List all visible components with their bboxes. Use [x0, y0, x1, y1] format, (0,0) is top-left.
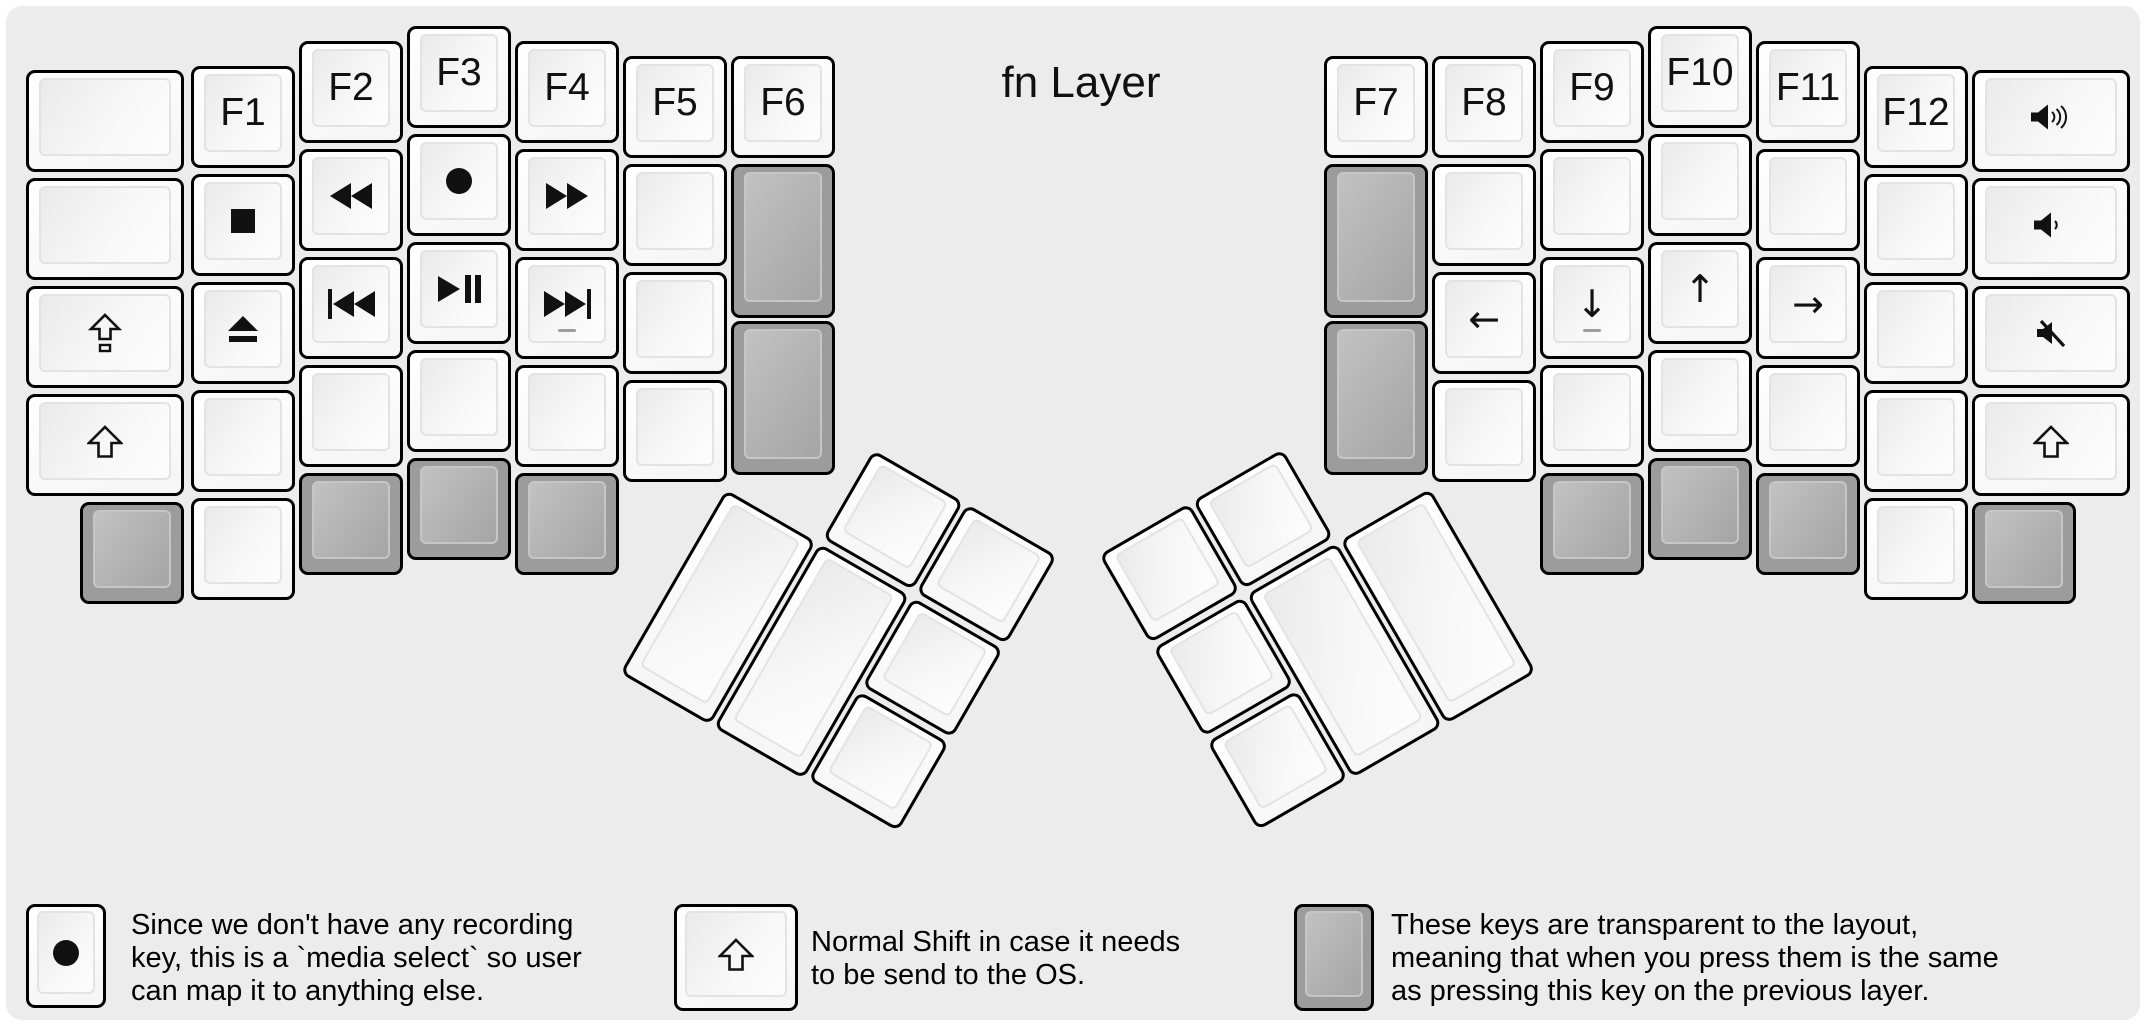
- key-label: F2: [328, 66, 374, 110]
- key-caps-lock[interactable]: [26, 286, 184, 388]
- keycap-top: [636, 280, 714, 358]
- key-label: F1: [220, 91, 266, 135]
- key-label: F6: [760, 81, 806, 125]
- key-play-pause[interactable]: [407, 242, 511, 344]
- fast-forward-icon: [546, 183, 588, 209]
- key-arrow-down[interactable]: ↓: [1540, 257, 1644, 359]
- key-label: F11: [1776, 66, 1840, 110]
- arrow-up-icon: ↑: [1684, 267, 1716, 311]
- keycap-top: [204, 290, 282, 368]
- key-blank[interactable]: [1540, 365, 1644, 467]
- key-record[interactable]: [407, 134, 511, 236]
- keycap-top: [1208, 462, 1315, 569]
- keycap-top: [1877, 182, 1955, 260]
- key-blank[interactable]: [1540, 149, 1644, 251]
- keycap-top: [312, 373, 390, 451]
- keycap-top: [1445, 172, 1523, 250]
- keycap-top: F6: [744, 64, 822, 142]
- keyboard-layout-panel: fn Layer F1F2F3F4F5F6F7F8F9F10F11F12←↓↑→…: [6, 6, 2140, 1020]
- key-transparent[interactable]: [515, 473, 619, 575]
- keycap-top: [744, 172, 822, 302]
- key-blank[interactable]: [623, 164, 727, 266]
- key-record-sample[interactable]: [26, 904, 106, 1008]
- mute-icon: [2033, 318, 2069, 348]
- keycap-top: [1553, 373, 1631, 451]
- shift-icon: [718, 938, 754, 971]
- key-f12[interactable]: F12: [1864, 66, 1968, 168]
- key-shift-sample[interactable]: [674, 904, 798, 1011]
- key-arrow-left[interactable]: ←: [1432, 272, 1536, 374]
- key-mute[interactable]: [1972, 286, 2130, 388]
- key-transparent[interactable]: [1324, 164, 1428, 318]
- keycap-top: [1168, 610, 1275, 717]
- keycap-top: [39, 78, 171, 156]
- arrow-down-icon: ↓: [1576, 282, 1608, 326]
- key-f11[interactable]: F11: [1756, 41, 1860, 143]
- key-blank[interactable]: [191, 498, 295, 600]
- keycap-top: F8: [1445, 64, 1523, 142]
- keycap-top: [420, 466, 498, 544]
- volume-down-icon: [2034, 212, 2068, 238]
- key-blank[interactable]: [1864, 174, 1968, 276]
- key-f8[interactable]: F8: [1432, 56, 1536, 158]
- key-transparent-sample[interactable]: [1294, 904, 1374, 1011]
- key-transparent[interactable]: [407, 458, 511, 560]
- keycap-top: [1661, 142, 1739, 220]
- key-f4[interactable]: F4: [515, 41, 619, 143]
- keycap-top: [1553, 481, 1631, 559]
- key-label: F5: [652, 81, 698, 125]
- key-blank[interactable]: [1864, 390, 1968, 492]
- keycap-top: F7: [1337, 64, 1415, 142]
- keycap-top: [39, 294, 171, 372]
- record-icon: [52, 939, 80, 967]
- keycap-top: [1553, 157, 1631, 235]
- keycap-top: [39, 186, 171, 264]
- key-next-track[interactable]: [515, 257, 619, 359]
- legend-record-text: Since we don't have any recording key, t…: [131, 909, 611, 1008]
- key-f3[interactable]: F3: [407, 26, 511, 128]
- keycap-top: [37, 911, 95, 994]
- keycap-top: [420, 358, 498, 436]
- key-blank[interactable]: [1648, 134, 1752, 236]
- key-blank[interactable]: [299, 365, 403, 467]
- key-f10[interactable]: F10: [1648, 26, 1752, 128]
- keycap-top: [1769, 481, 1847, 559]
- key-blank[interactable]: [1756, 365, 1860, 467]
- keycap-top: [881, 611, 988, 718]
- stop-icon: [230, 208, 256, 234]
- keycap-top: →: [1769, 265, 1847, 343]
- key-f9[interactable]: F9: [1540, 41, 1644, 143]
- key-blank[interactable]: [1756, 149, 1860, 251]
- keycap-top: [204, 506, 282, 584]
- key-blank[interactable]: [515, 365, 619, 467]
- keycap-top: F12: [1877, 74, 1955, 152]
- keycap-top: [1305, 911, 1363, 997]
- key-transparent[interactable]: [299, 473, 403, 575]
- key-label: F3: [436, 51, 482, 95]
- shift-icon: [87, 425, 123, 458]
- screenshot-stage: fn Layer F1F2F3F4F5F6F7F8F9F10F11F12←↓↑→…: [0, 0, 2146, 1026]
- keycap-top: [528, 157, 606, 235]
- keycap-top: [1877, 290, 1955, 368]
- key-blank[interactable]: [623, 272, 727, 374]
- keycap-top: [1661, 358, 1739, 436]
- keycap-top: [1222, 703, 1329, 810]
- keycap-top: [1769, 157, 1847, 235]
- keycap-top: ↑: [1661, 250, 1739, 328]
- key-eject[interactable]: [191, 282, 295, 384]
- keycap-top: ←: [1445, 280, 1523, 358]
- keycap-top: [1661, 466, 1739, 544]
- keycap-top: [312, 265, 390, 343]
- key-transparent[interactable]: [1648, 458, 1752, 560]
- eject-icon: [228, 316, 258, 342]
- keycap-top: [39, 402, 171, 480]
- legend-shift-text: Normal Shift in case it needs to be send…: [811, 926, 1291, 992]
- key-stop[interactable]: [191, 174, 295, 276]
- key-volume-down[interactable]: [1972, 178, 2130, 280]
- keycap-top: F2: [312, 49, 390, 127]
- volume-up-icon: [2031, 104, 2072, 130]
- keycap-top: F3: [420, 34, 498, 112]
- keycap-top: [420, 142, 498, 220]
- keycap-top: F10: [1661, 34, 1739, 112]
- play-pause-icon: [438, 275, 481, 303]
- key-transparent[interactable]: [1972, 502, 2076, 604]
- key-f6[interactable]: F6: [731, 56, 835, 158]
- key-blank[interactable]: [26, 70, 184, 172]
- keycap-top: [204, 182, 282, 260]
- keycap-top: [528, 481, 606, 559]
- record-icon: [445, 167, 473, 195]
- key-blank[interactable]: [191, 390, 295, 492]
- key-rewind[interactable]: [299, 149, 403, 251]
- homing-bar: [558, 329, 576, 332]
- key-label: F12: [1882, 91, 1949, 135]
- arrow-right-icon: →: [1792, 282, 1824, 326]
- keycap-top: F5: [636, 64, 714, 142]
- keycap-top: F1: [204, 74, 282, 152]
- key-transparent[interactable]: [80, 502, 184, 604]
- key-arrow-up[interactable]: ↑: [1648, 242, 1752, 344]
- keycap-top: ↓: [1553, 265, 1631, 343]
- legend-transparent-text: These keys are transparent to the layout…: [1391, 909, 2011, 1008]
- keycap-top: [685, 911, 787, 997]
- key-label: F9: [1569, 66, 1615, 110]
- keycap-top: F4: [528, 49, 606, 127]
- key-blank[interactable]: [1864, 498, 1968, 600]
- key-label: F10: [1666, 51, 1733, 95]
- key-transparent[interactable]: [1540, 473, 1644, 575]
- key-arrow-right[interactable]: →: [1756, 257, 1860, 359]
- key-shift[interactable]: [26, 394, 184, 496]
- layer-title: fn Layer: [881, 58, 1281, 108]
- keycap-top: [1877, 398, 1955, 476]
- key-label: F7: [1353, 81, 1399, 125]
- prev-track-icon: [328, 289, 375, 319]
- key-f5[interactable]: F5: [623, 56, 727, 158]
- keycap-top: [1985, 510, 2063, 588]
- keycap-top: [93, 510, 171, 588]
- keycap-top: [1985, 294, 2117, 372]
- key-transparent[interactable]: [1756, 473, 1860, 575]
- key-f7[interactable]: F7: [1324, 56, 1428, 158]
- keycap-top: [827, 704, 934, 811]
- key-f1[interactable]: F1: [191, 66, 295, 168]
- keycap-top: [636, 388, 714, 466]
- keycap-top: [312, 481, 390, 559]
- keycap-top: [1114, 516, 1221, 623]
- key-f2[interactable]: F2: [299, 41, 403, 143]
- keycap-top: [842, 463, 949, 570]
- caps-lock-icon: [88, 313, 122, 353]
- keycap-top: [636, 172, 714, 250]
- key-blank[interactable]: [623, 380, 727, 482]
- keycap-top: [1445, 388, 1523, 466]
- key-fast-forward[interactable]: [515, 149, 619, 251]
- keycap-top: [935, 517, 1042, 624]
- key-blank[interactable]: [26, 178, 184, 280]
- rewind-icon: [330, 183, 372, 209]
- keycap-top: F9: [1553, 49, 1631, 127]
- keycap-top: [204, 398, 282, 476]
- key-label: F8: [1461, 81, 1507, 125]
- keycap-top: [1985, 78, 2117, 156]
- arrow-left-icon: ←: [1468, 297, 1500, 341]
- key-blank[interactable]: [1432, 380, 1536, 482]
- homing-bar: [1583, 329, 1601, 332]
- keycap-top: [1985, 402, 2117, 480]
- keycap-top: F11: [1769, 49, 1847, 127]
- keycap-top: [528, 373, 606, 451]
- key-blank[interactable]: [1648, 350, 1752, 452]
- keycap-top: [420, 250, 498, 328]
- key-prev-track[interactable]: [299, 257, 403, 359]
- keycap-top: [1877, 506, 1955, 584]
- next-track-icon: [544, 289, 591, 319]
- key-transparent[interactable]: [731, 164, 835, 318]
- shift-icon: [2033, 425, 2069, 458]
- keycap-top: [1769, 373, 1847, 451]
- key-blank[interactable]: [407, 350, 511, 452]
- keycap-top: [1337, 172, 1415, 302]
- keycap-top: [312, 157, 390, 235]
- key-label: F4: [544, 66, 590, 110]
- keycap-top: [1985, 186, 2117, 264]
- keycap-top: [528, 265, 606, 343]
- key-blank[interactable]: [1432, 164, 1536, 266]
- key-volume-up[interactable]: [1972, 70, 2130, 172]
- key-blank[interactable]: [1864, 282, 1968, 384]
- key-shift[interactable]: [1972, 394, 2130, 496]
